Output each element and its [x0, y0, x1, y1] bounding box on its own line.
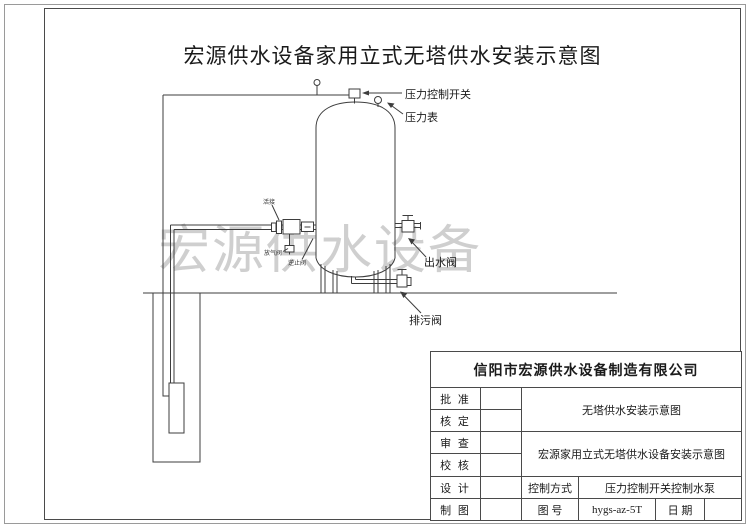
proof-label: 校 核	[431, 454, 481, 477]
verify-label: 核 定	[431, 410, 481, 432]
date-value-cell	[705, 499, 742, 521]
review-signature-cell	[481, 432, 522, 454]
drawing-no-label: 图 号	[522, 499, 579, 521]
approve-signature-cell	[481, 388, 522, 410]
draft-label: 制 图	[431, 499, 481, 521]
leader-pressure-switch	[362, 91, 402, 96]
drawing-name-top: 无塔供水安装示意图	[522, 388, 742, 432]
check-valve-symbol	[283, 220, 300, 255]
outlet-valve-label: 出水阀	[424, 254, 457, 270]
review-label: 审 查	[431, 432, 481, 454]
pump-cable-line	[163, 95, 169, 396]
pressure-gauge-label: 压力表	[405, 109, 438, 125]
design-label: 设 计	[431, 477, 481, 499]
vent-fitting-icon	[314, 80, 320, 96]
pressure-switch-label: 压力控制开关	[405, 86, 471, 102]
outlet-valve-symbol	[395, 216, 421, 233]
check-valve-label: 逆止阀	[288, 258, 306, 267]
control-mode-value: 压力控制开关控制水泵	[579, 477, 742, 499]
drain-valve-label: 排污阀	[409, 312, 442, 328]
well-outline	[153, 293, 200, 462]
drawing-no-value: hygs-az-5T	[579, 499, 656, 521]
draft-signature-cell	[481, 499, 522, 521]
title-block: 信阳市宏源供水设备制造有限公司 批 准 无塔供水安装示意图 核 定 审 查 宏源…	[430, 351, 742, 521]
approve-label: 批 准	[431, 388, 481, 410]
tank-outline	[316, 102, 395, 277]
verify-signature-cell	[481, 410, 522, 432]
pipe-fitting-symbol	[302, 222, 314, 232]
control-mode-label: 控制方式	[522, 477, 579, 499]
company-name: 信阳市宏源供水设备制造有限公司	[431, 352, 742, 388]
air-valve-label: 放气阀	[264, 248, 282, 257]
proof-signature-cell	[481, 454, 522, 477]
date-label: 日 期	[656, 499, 705, 521]
leader-union	[272, 205, 279, 220]
union-fitting-symbol	[272, 221, 282, 234]
drawing-name-bottom: 宏源家用立式无塔供水设备安装示意图	[522, 432, 742, 477]
pump-symbol	[169, 383, 184, 433]
leader-check-valve	[302, 239, 313, 260]
pressure-switch-symbol	[349, 89, 360, 104]
union-label: 活接	[263, 197, 275, 206]
leader-drain-valve	[400, 292, 421, 314]
design-signature-cell	[481, 477, 522, 499]
drawing-sheet: 宏源供水设备家用立式无塔供水安装示意图 宏源供水设备	[0, 0, 750, 530]
